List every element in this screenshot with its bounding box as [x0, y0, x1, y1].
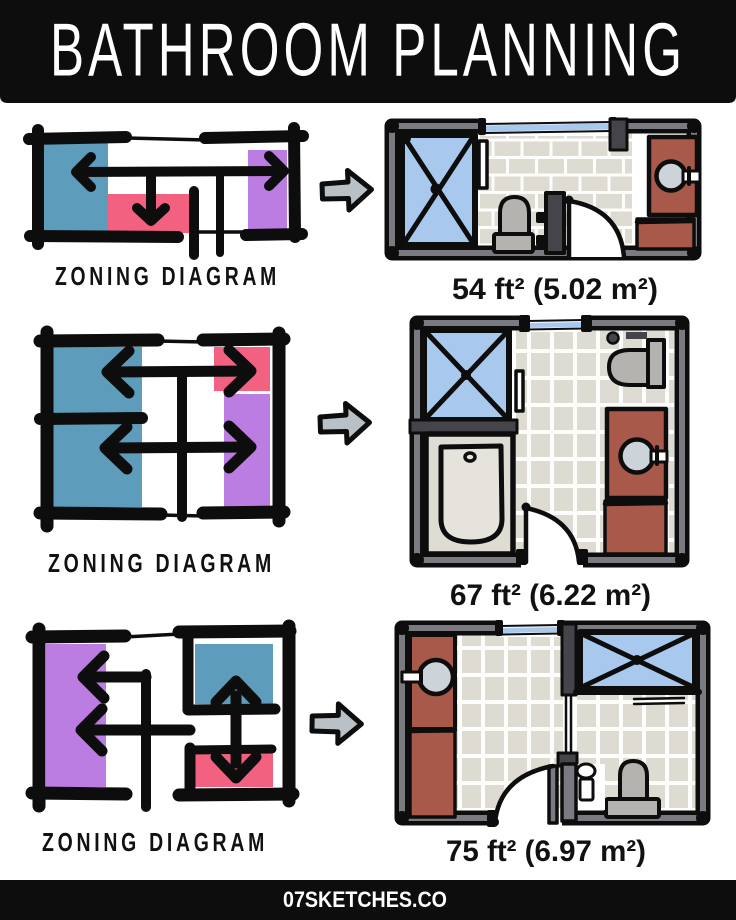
svg-text:ZONING DIAGRAM: ZONING DIAGRAM [48, 548, 275, 578]
svg-text:54 ft² (5.02 m²): 54 ft² (5.02 m²) [452, 273, 658, 306]
svg-text:07SKETCHES.CO: 07SKETCHES.CO [283, 887, 447, 912]
svg-text:67 ft² (6.22 m²): 67 ft² (6.22 m²) [450, 579, 651, 612]
svg-text:75 ft² (6.97 m²): 75 ft² (6.97 m²) [446, 835, 646, 868]
svg-text:ZONING DIAGRAM: ZONING DIAGRAM [55, 261, 280, 291]
svg-text:ZONING DIAGRAM: ZONING DIAGRAM [42, 827, 268, 857]
svg-text:BATHROOM PLANNING: BATHROOM PLANNING [50, 8, 686, 92]
